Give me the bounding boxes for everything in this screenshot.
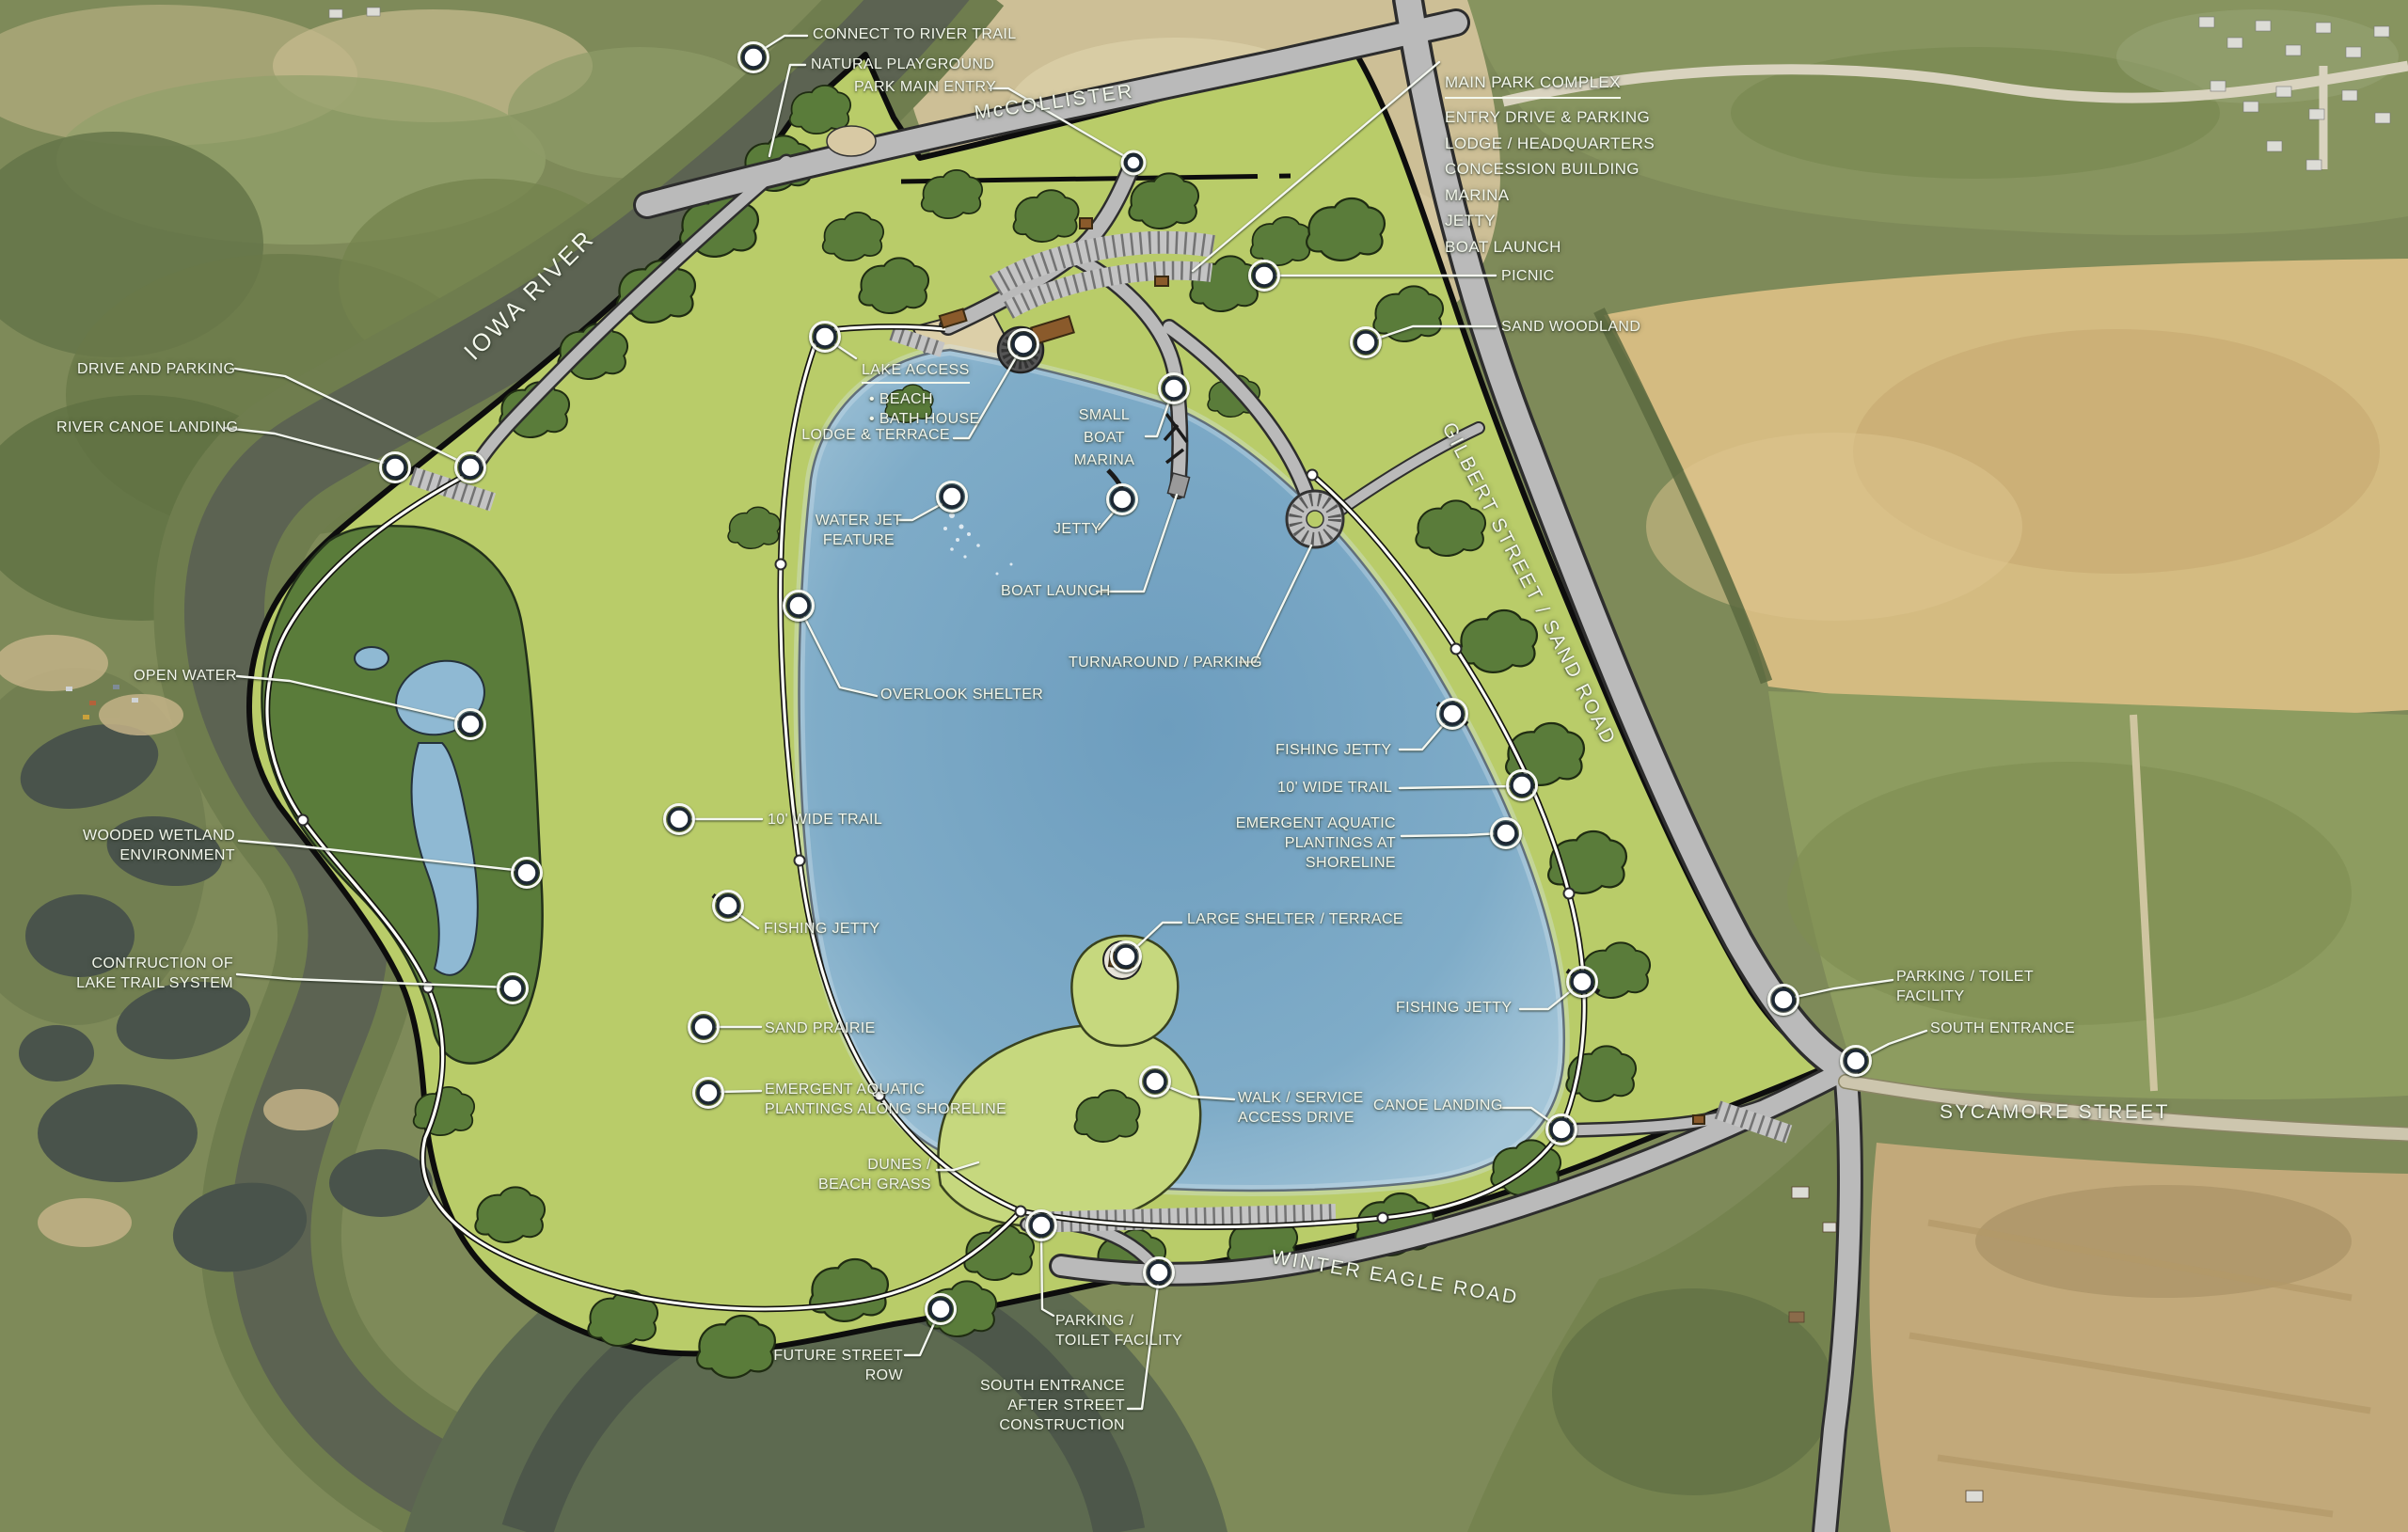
toilet-building-east: [1693, 1115, 1704, 1124]
park-master-plan-map: CONNECT TO RIVER TRAIL NATURAL PLAYGROUN…: [0, 0, 2408, 1532]
concession-building: [1080, 218, 1092, 229]
playground-pad: [827, 126, 876, 156]
base-map: [0, 0, 2408, 1532]
marina-building: [1155, 276, 1168, 286]
